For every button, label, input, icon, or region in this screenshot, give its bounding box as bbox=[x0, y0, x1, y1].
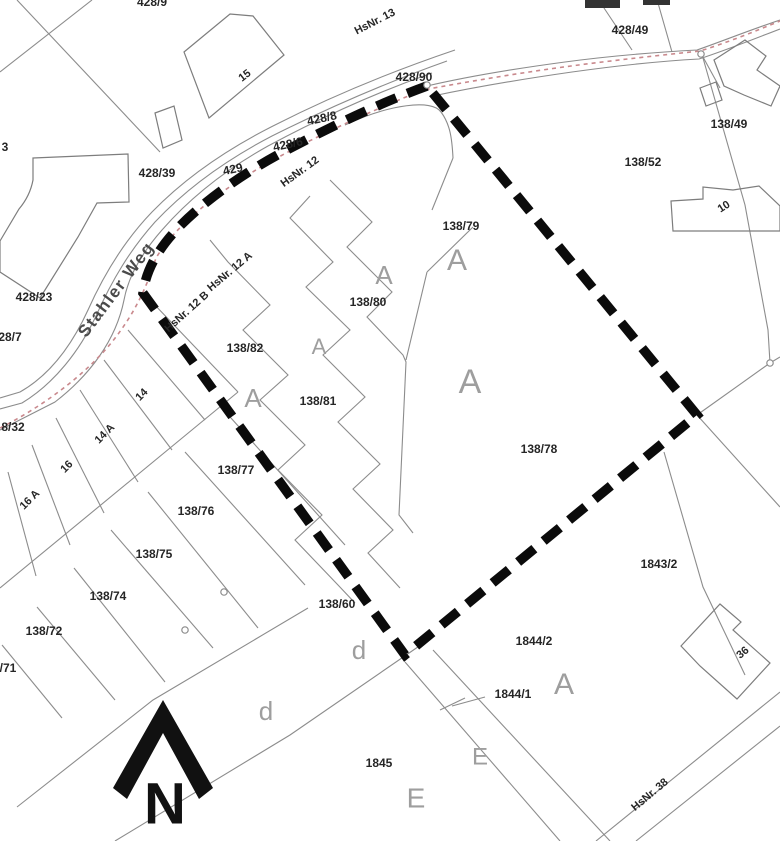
parcel-number-label: 138/81 bbox=[300, 394, 337, 408]
parcel-line bbox=[8, 472, 36, 576]
parcel-number-label: 428/23 bbox=[16, 290, 53, 304]
parcel-number-label: 16 bbox=[58, 458, 75, 475]
landuse-letter: A bbox=[447, 244, 467, 277]
parcel-line bbox=[432, 158, 453, 210]
landuse-letter: A bbox=[459, 363, 482, 401]
parcel-number-label: 428/49 bbox=[612, 23, 649, 37]
parcel-line bbox=[74, 568, 165, 682]
parcel-number-label: 1844/2 bbox=[516, 634, 553, 648]
parcel-number-label: 138/76 bbox=[178, 504, 215, 518]
landuse-letter: E bbox=[472, 743, 488, 770]
parcel-number-label: HsNr. 13 bbox=[353, 7, 398, 38]
parcel-number-label: 28/7 bbox=[0, 330, 22, 344]
parcel-line bbox=[406, 272, 427, 360]
parcel-number-label: /71 bbox=[0, 661, 17, 675]
parcel-line bbox=[697, 363, 770, 415]
parcel-number-label: 138/52 bbox=[625, 155, 662, 169]
building-15 bbox=[184, 14, 284, 118]
parcel-number-label: 1845 bbox=[366, 756, 393, 770]
landuse-letter: d bbox=[352, 635, 366, 665]
parcel-line bbox=[658, 3, 672, 52]
parcel-number-label: 428/90 bbox=[396, 70, 433, 84]
parcel-number-label: 1844/1 bbox=[495, 687, 532, 701]
parcel-number-label: 138/49 bbox=[711, 117, 748, 131]
north-label: N bbox=[144, 771, 186, 836]
parcel-line bbox=[0, 0, 92, 72]
parcel-line bbox=[104, 360, 172, 450]
parcel-number-label: HsNr. 38 bbox=[629, 776, 670, 813]
parcel-number-label: 15 bbox=[236, 67, 253, 84]
landuse-letter: A bbox=[312, 334, 327, 359]
parcel-zigzag-line bbox=[330, 180, 413, 533]
parcel-number-label: 16 A bbox=[18, 488, 43, 513]
landuse-letter: E bbox=[407, 782, 426, 813]
parcel-number-label: 138/60 bbox=[319, 597, 356, 611]
cadastral-map: 428/9HsNr. 13428/90428/49138/49138/52101… bbox=[0, 0, 780, 841]
parcel-number-label: HsNr. 12 A bbox=[205, 250, 255, 294]
parcel-number-label: 138/80 bbox=[350, 295, 387, 309]
parcel-line bbox=[697, 415, 780, 507]
parcel-number-label: 3 bbox=[2, 140, 9, 154]
parcel-number-label: 138/75 bbox=[136, 547, 173, 561]
parcel-number-label: 138/72 bbox=[26, 624, 63, 638]
landuse-letter: A bbox=[375, 260, 393, 290]
parcel-number-label: 428/6 bbox=[272, 134, 305, 154]
landuse-letter: d bbox=[259, 696, 273, 726]
parcel-line bbox=[152, 302, 238, 392]
parcel-number-label: 428/9 bbox=[137, 0, 167, 9]
parcel-number-label: 1843/2 bbox=[641, 557, 678, 571]
parcel-number-label: 138/79 bbox=[443, 219, 480, 233]
parcel-number-label: 138/74 bbox=[90, 589, 127, 603]
road-line bbox=[427, 20, 780, 86]
cadastral-map-stage: 428/9HsNr. 13428/90428/49138/49138/52101… bbox=[0, 0, 780, 846]
parcel-number-label: 8/32 bbox=[1, 420, 25, 434]
survey-point bbox=[698, 51, 704, 57]
top-edge-structure bbox=[643, 0, 670, 5]
road-line bbox=[0, 61, 447, 409]
parcel-number-label: 10 bbox=[716, 199, 733, 216]
parcel-line bbox=[17, 0, 160, 152]
building-small-road bbox=[155, 106, 182, 148]
parcel-number-label: 138/82 bbox=[227, 341, 264, 355]
landuse-letter: A bbox=[554, 668, 574, 701]
parcel-number-label: 138/77 bbox=[218, 463, 255, 477]
parcel-line bbox=[37, 607, 115, 700]
parcel-line bbox=[596, 692, 780, 841]
parcel-line bbox=[433, 650, 610, 841]
parcel-number-label: 138/78 bbox=[521, 442, 558, 456]
road-line bbox=[0, 73, 432, 430]
landuse-letter: A bbox=[244, 383, 262, 413]
survey-point bbox=[182, 627, 188, 633]
building-17 bbox=[0, 154, 129, 298]
survey-point bbox=[767, 360, 773, 366]
parcel-number-label: 428/39 bbox=[139, 166, 176, 180]
top-edge-structure bbox=[585, 0, 620, 8]
parcel-number-label: HsNr. 12 bbox=[279, 154, 322, 190]
survey-point bbox=[221, 589, 227, 595]
parcel-number-label: 14 bbox=[133, 386, 151, 404]
parcel-zigzag-line bbox=[210, 240, 355, 603]
parcel-line bbox=[2, 645, 62, 718]
parcel-number-label: HsNr. 12 B bbox=[162, 289, 211, 335]
building-36 bbox=[681, 604, 770, 699]
